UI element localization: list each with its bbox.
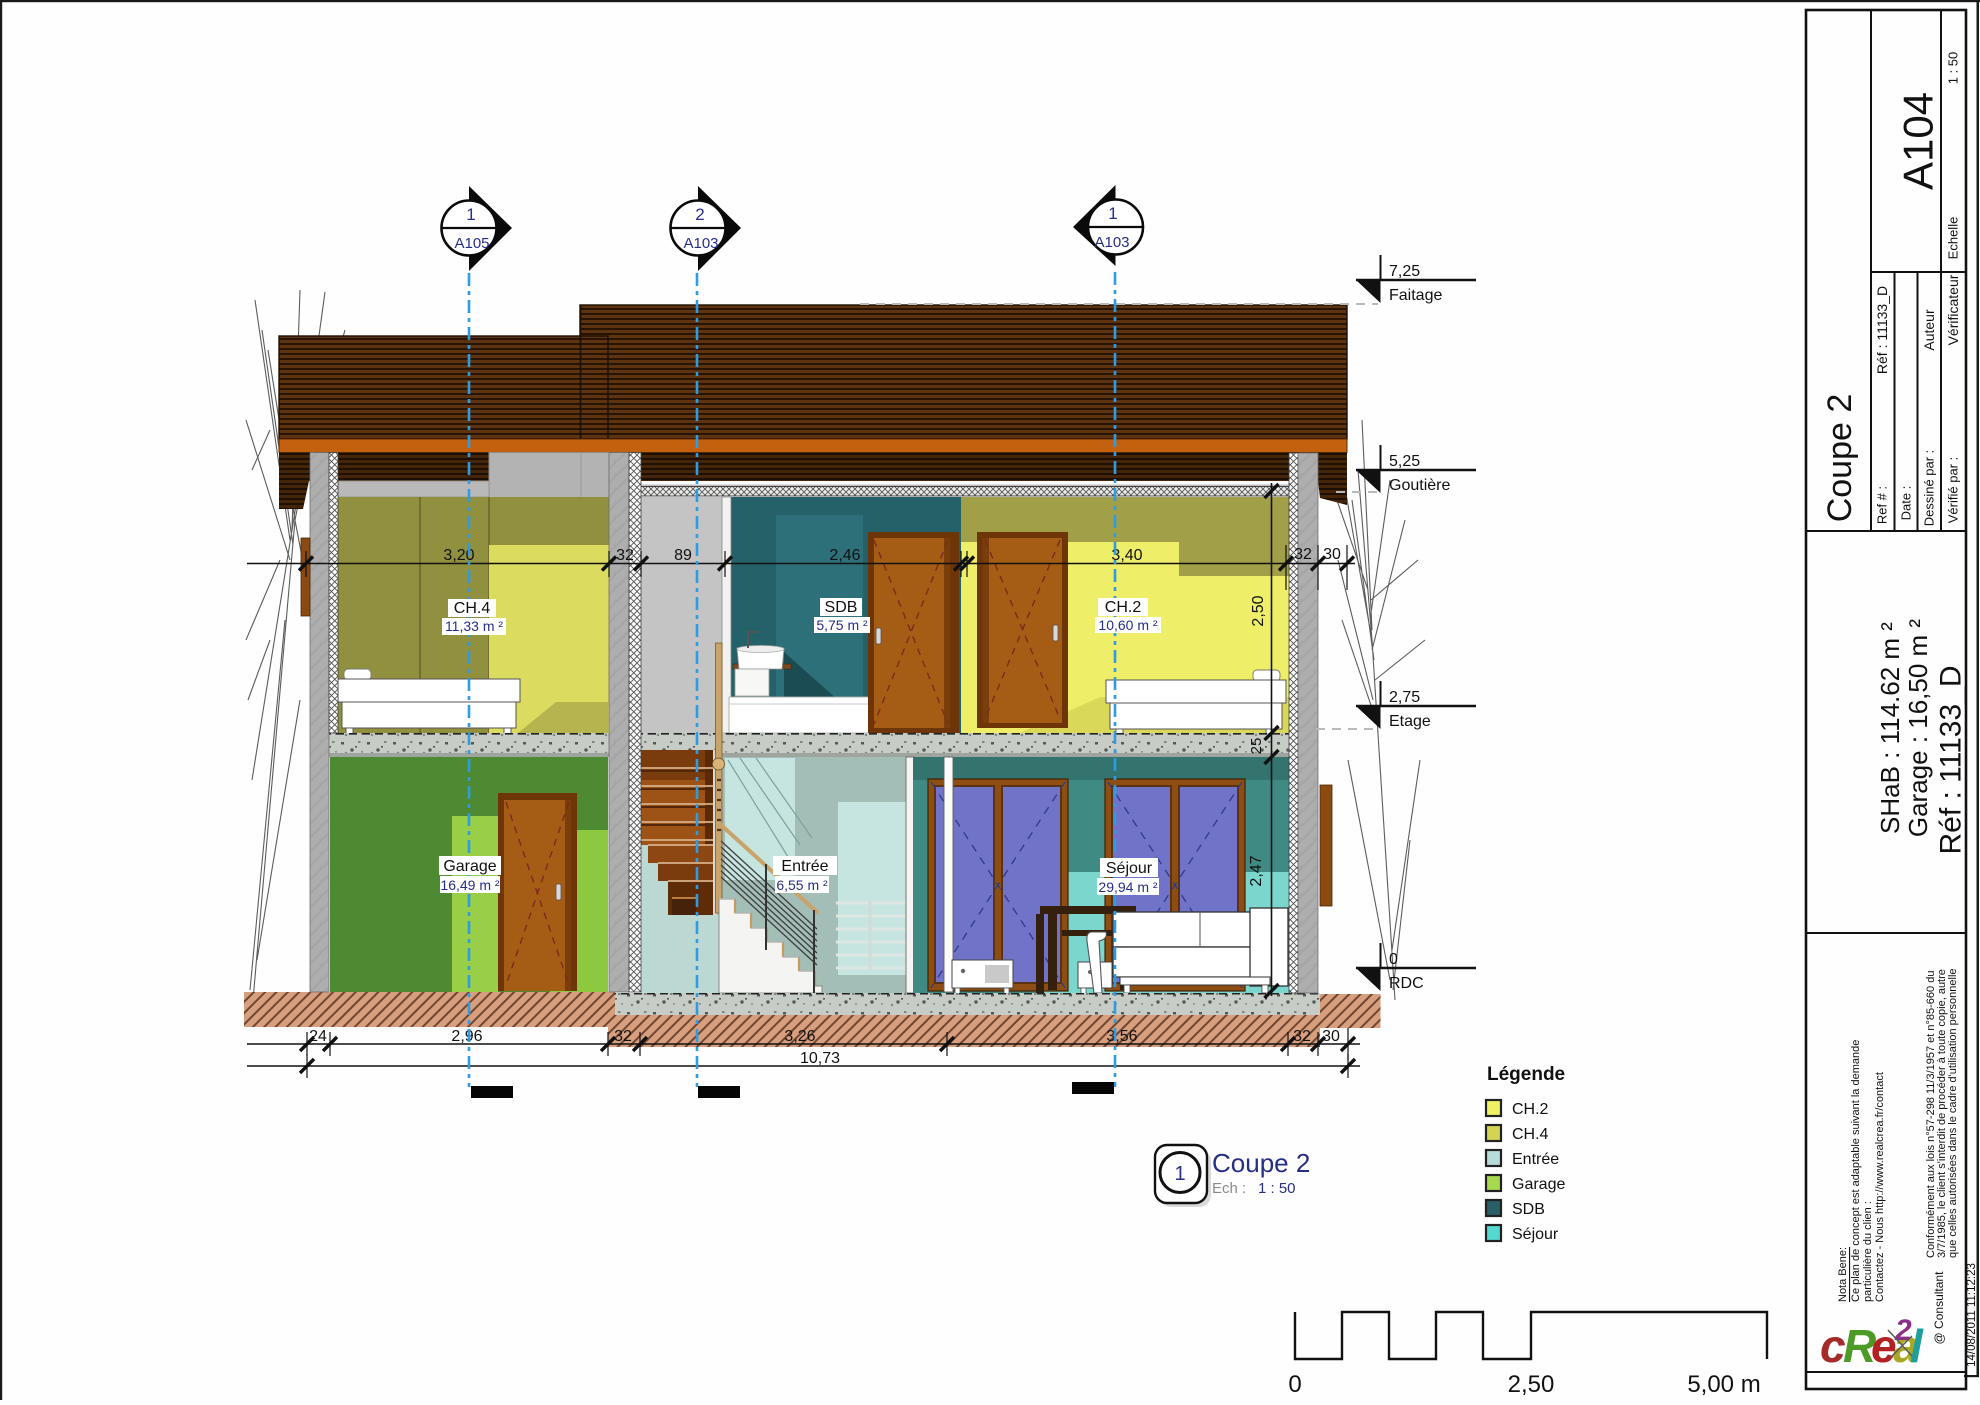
svg-text:Faitage: Faitage — [1389, 287, 1442, 304]
svg-text:c: c — [1820, 1320, 1846, 1372]
svg-text:32: 32 — [1293, 1028, 1311, 1045]
svg-text:2,96: 2,96 — [451, 1028, 482, 1045]
svg-text:24: 24 — [309, 1028, 327, 1045]
svg-text:10,60 m ²: 10,60 m ² — [1098, 617, 1157, 633]
svg-text:2,46: 2,46 — [829, 547, 860, 564]
svg-text:1: 1 — [466, 205, 475, 224]
svg-text:3,56: 3,56 — [1106, 1028, 1137, 1045]
svg-text:Garage: Garage — [443, 858, 496, 875]
svg-text:A103: A103 — [1094, 234, 1129, 251]
svg-text:A103: A103 — [683, 235, 718, 252]
svg-text:A104: A104 — [1895, 92, 1942, 190]
svg-text:Auteur: Auteur — [1921, 309, 1937, 351]
svg-text:Ref # :: Ref # : — [1875, 486, 1890, 524]
svg-text:particulière du clien :: particulière du clien : — [1862, 1201, 1874, 1302]
svg-text:1 : 50: 1 : 50 — [1946, 52, 1961, 85]
svg-text:Réf : 11133_D: Réf : 11133_D — [1935, 665, 1968, 854]
svg-text:RDC: RDC — [1389, 975, 1424, 992]
svg-text:Ce plan de concept est adaptab: Ce plan de concept est adaptable suivant… — [1850, 1040, 1862, 1302]
svg-text:16,49 m ²: 16,49 m ² — [440, 877, 499, 893]
svg-text:7,25: 7,25 — [1389, 263, 1420, 280]
svg-text:l: l — [1910, 1320, 1924, 1372]
svg-text:Contactez - Nous http://www.re: Contactez - Nous http://www.realcrea.fr/… — [1874, 1072, 1886, 1302]
svg-text:14/08/2011 11:12:23: 14/08/2011 11:12:23 — [1966, 1263, 1978, 1367]
svg-text:6,55 m ²: 6,55 m ² — [776, 877, 828, 893]
svg-text:CH.2: CH.2 — [1105, 599, 1142, 616]
svg-text:CH.4: CH.4 — [1512, 1126, 1549, 1143]
svg-text:2,47: 2,47 — [1248, 855, 1265, 886]
svg-text:3,26: 3,26 — [784, 1028, 815, 1045]
svg-text:Date :: Date : — [1899, 486, 1914, 521]
svg-text:Garage: Garage — [1512, 1176, 1565, 1193]
svg-text:32: 32 — [614, 1028, 632, 1045]
svg-text:Vérifié par :: Vérifié par : — [1946, 457, 1961, 523]
svg-text:A105: A105 — [454, 235, 489, 252]
svg-text:1: 1 — [1174, 1163, 1185, 1185]
svg-text:SHaB : 114.62 m ²: SHaB : 114.62 m ² — [1875, 622, 1905, 834]
svg-text:Coupe 2: Coupe 2 — [1821, 394, 1859, 523]
svg-text:0: 0 — [1288, 1371, 1301, 1398]
svg-text:89: 89 — [674, 547, 692, 564]
svg-text:5,25: 5,25 — [1389, 453, 1420, 470]
svg-text:que celles autorisées dans le: que celles autorisées dans le cadre d'ut… — [1947, 968, 1959, 1258]
svg-text:Etage: Etage — [1389, 713, 1431, 730]
svg-text:30: 30 — [1322, 1028, 1340, 1045]
svg-text:Garage : 16,50 m ²: Garage : 16,50 m ² — [1903, 619, 1933, 838]
svg-text:5,00 m: 5,00 m — [1687, 1371, 1760, 1398]
svg-text:11,33 m ²: 11,33 m ² — [445, 618, 503, 634]
svg-text:SDB: SDB — [1512, 1201, 1545, 1218]
svg-text:10,73: 10,73 — [800, 1050, 840, 1067]
svg-text:2,50: 2,50 — [1250, 595, 1267, 626]
svg-text:SDB: SDB — [825, 599, 858, 616]
svg-text:2: 2 — [695, 205, 704, 224]
svg-text:5,75 m ²: 5,75 m ² — [816, 617, 868, 633]
svg-text:32: 32 — [1294, 546, 1312, 563]
svg-text:32: 32 — [616, 547, 634, 564]
svg-text:Coupe 2: Coupe 2 — [1212, 1148, 1310, 1178]
svg-text:@ Consultant: @ Consultant — [1932, 1271, 1946, 1345]
svg-text:2,50: 2,50 — [1508, 1371, 1555, 1398]
svg-text:Dessiné par :: Dessiné par : — [1922, 450, 1937, 527]
svg-text:Entrée: Entrée — [781, 858, 828, 875]
svg-text:Goutière: Goutière — [1389, 477, 1450, 494]
svg-text:Séjour: Séjour — [1512, 1226, 1559, 1243]
svg-text:Légende: Légende — [1487, 1064, 1565, 1085]
svg-text:25: 25 — [1248, 738, 1265, 755]
svg-text:Réf : 11133_D: Réf : 11133_D — [1874, 286, 1890, 374]
svg-text:CH.2: CH.2 — [1512, 1101, 1549, 1118]
svg-text:Echelle: Echelle — [1946, 217, 1961, 260]
svg-text:Vérificateur: Vérificateur — [1945, 274, 1961, 345]
svg-text:Nota Bene:: Nota Bene: — [1837, 1247, 1849, 1302]
svg-text:2,75: 2,75 — [1389, 689, 1420, 706]
svg-text:0: 0 — [1389, 951, 1398, 968]
svg-text:Ech :: Ech : — [1212, 1180, 1246, 1197]
svg-text:CH.4: CH.4 — [454, 600, 491, 617]
svg-text:30: 30 — [1323, 546, 1341, 563]
svg-text:1 : 50: 1 : 50 — [1258, 1180, 1296, 1197]
svg-text:29,94 m ²: 29,94 m ² — [1098, 879, 1157, 895]
svg-text:1: 1 — [1108, 204, 1117, 223]
svg-text:Entrée: Entrée — [1512, 1151, 1559, 1168]
svg-text:Séjour: Séjour — [1106, 860, 1153, 877]
